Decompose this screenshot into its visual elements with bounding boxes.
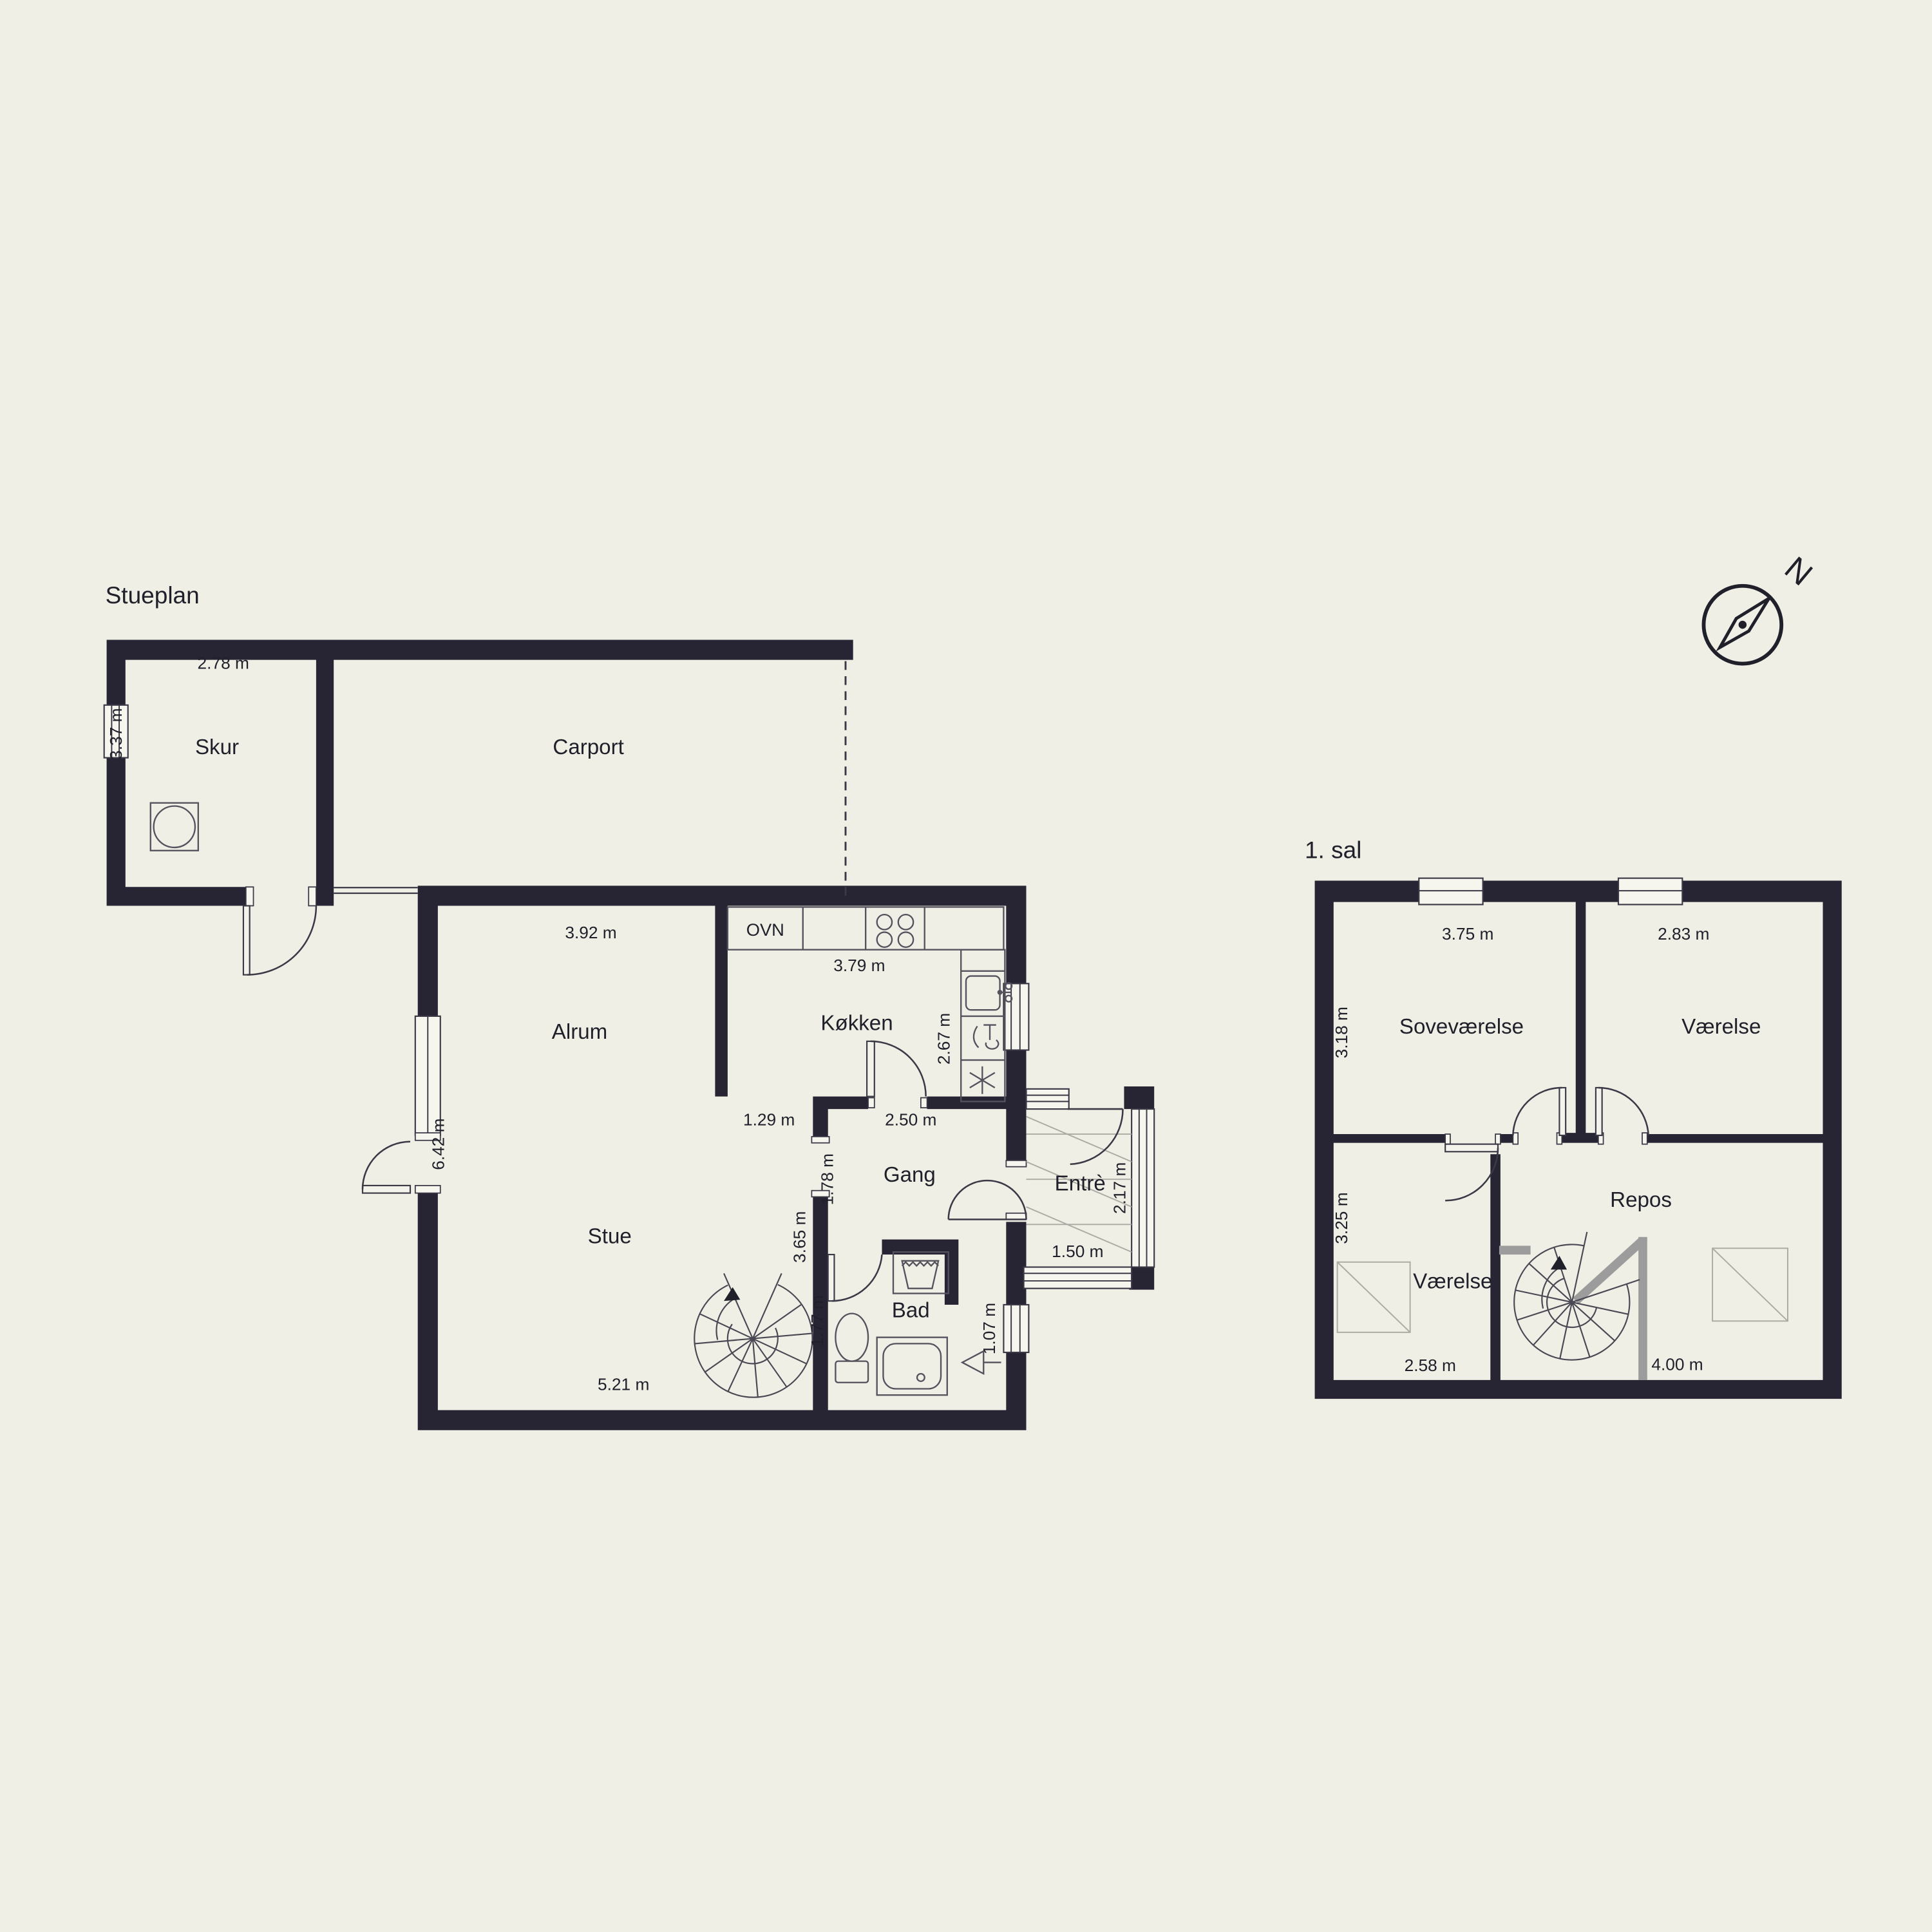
sovevaerelse-label: Soveværelse <box>1399 1015 1524 1039</box>
alrum-label: Alrum <box>552 1020 607 1044</box>
kitchen-window <box>1003 983 1028 1050</box>
entre-label: Entrè <box>1055 1172 1106 1196</box>
gang-height-dim: 1.78 m <box>818 1153 837 1205</box>
bad-window <box>1003 1305 1028 1352</box>
gang-label: Gang <box>884 1163 936 1187</box>
compass-north-label: N <box>1778 549 1820 592</box>
carport-edge-line <box>334 887 418 893</box>
stair-direction-arrow-first <box>1551 1256 1567 1269</box>
ground-windows <box>104 705 1155 1352</box>
entre-width-dim: 1.50 m <box>1052 1242 1103 1261</box>
first-floor-plan: 1. sal <box>1305 836 1842 1399</box>
bad-sink-vanity <box>893 1252 949 1293</box>
stue-east-dim: 3.65 m <box>790 1211 810 1263</box>
entre-sidelight-window <box>1027 1089 1069 1109</box>
sovevaerelse-door <box>1559 1088 1566 1135</box>
alrum-width-dim: 3.92 m <box>565 923 616 942</box>
stair-railing <box>1499 1237 1647 1380</box>
vaerelse-bottom-label: Værelse <box>1413 1270 1492 1294</box>
compass-rose: N <box>1703 549 1819 664</box>
compass-center-dot <box>1739 621 1747 629</box>
skur-height-dim: 3.37 m <box>106 708 126 759</box>
kitchen-label: Køkken <box>820 1011 893 1035</box>
sovevaerelse-width-dim: 3.75 m <box>1442 924 1493 943</box>
passage-dim: 1.29 m <box>743 1110 795 1129</box>
entre-south-window <box>1024 1267 1132 1289</box>
skur-width-dim: 2.78 m <box>198 653 249 672</box>
stue-label: Stue <box>588 1225 632 1249</box>
toilet-icon <box>835 1314 868 1383</box>
carport-label: Carport <box>553 735 623 759</box>
vaerelse-bottom-width-dim: 2.58 m <box>1405 1356 1456 1375</box>
first-floor-door-frames <box>1445 1133 1647 1144</box>
cooktop-icon <box>877 914 913 947</box>
repos-width-dim: 4.00 m <box>1651 1354 1703 1374</box>
stue-exterior-door <box>363 1186 410 1193</box>
ground-floor-plan: Stueplan <box>104 582 1155 1430</box>
sovevaerelse-height-dim: 3.18 m <box>1332 1007 1351 1058</box>
kitchen-height-dim: 2.67 m <box>934 1013 954 1065</box>
fridge-snowflake-icon <box>970 1066 995 1094</box>
vaerelse-bottom-height-dim: 3.25 m <box>1332 1192 1351 1244</box>
skur-label: Skur <box>195 735 239 759</box>
entre-height-dim: 2.17 m <box>1110 1162 1129 1214</box>
bad-height-dim: 1.77 m <box>808 1295 827 1347</box>
stue-width-dim: 5.21 m <box>598 1374 649 1394</box>
skur-door <box>243 905 250 974</box>
bathtub-icon <box>877 1338 947 1396</box>
washing-machine-icon <box>151 803 198 851</box>
entre-east-window <box>1132 1109 1154 1267</box>
bad-window-dim: 1.07 m <box>980 1303 999 1354</box>
vaerelse-top-label: Værelse <box>1681 1015 1761 1039</box>
vaerelse-top-width-dim: 2.83 m <box>1658 924 1709 943</box>
first-floor-doors <box>1445 1088 1649 1200</box>
bad-fixtures <box>835 1252 1001 1395</box>
spiral-staircase-ground <box>694 1273 813 1397</box>
first-floor-title: 1. sal <box>1305 836 1361 863</box>
bad-label: Bad <box>892 1298 930 1322</box>
kitchen-width-dim: 3.79 m <box>833 956 885 975</box>
kitchen-door <box>867 1041 875 1097</box>
repos-label: Repos <box>1610 1188 1672 1212</box>
oven-label: OVN <box>746 920 784 940</box>
floor-drain-icon <box>962 1351 1001 1374</box>
floor-plan-canvas: Stueplan <box>0 0 1932 1932</box>
skylight-icons <box>1338 1248 1788 1332</box>
vaerelse-top-door <box>1596 1088 1602 1135</box>
dishwasher-icon <box>974 1025 998 1049</box>
alrum-height-dim: 6.42 m <box>429 1118 448 1170</box>
gang-width-dim: 2.50 m <box>885 1110 936 1129</box>
vaerelse-bottom-door <box>1445 1144 1498 1152</box>
ground-floor-title: Stueplan <box>106 582 200 609</box>
stair-direction-arrow <box>724 1287 740 1301</box>
bad-door <box>828 1255 835 1301</box>
